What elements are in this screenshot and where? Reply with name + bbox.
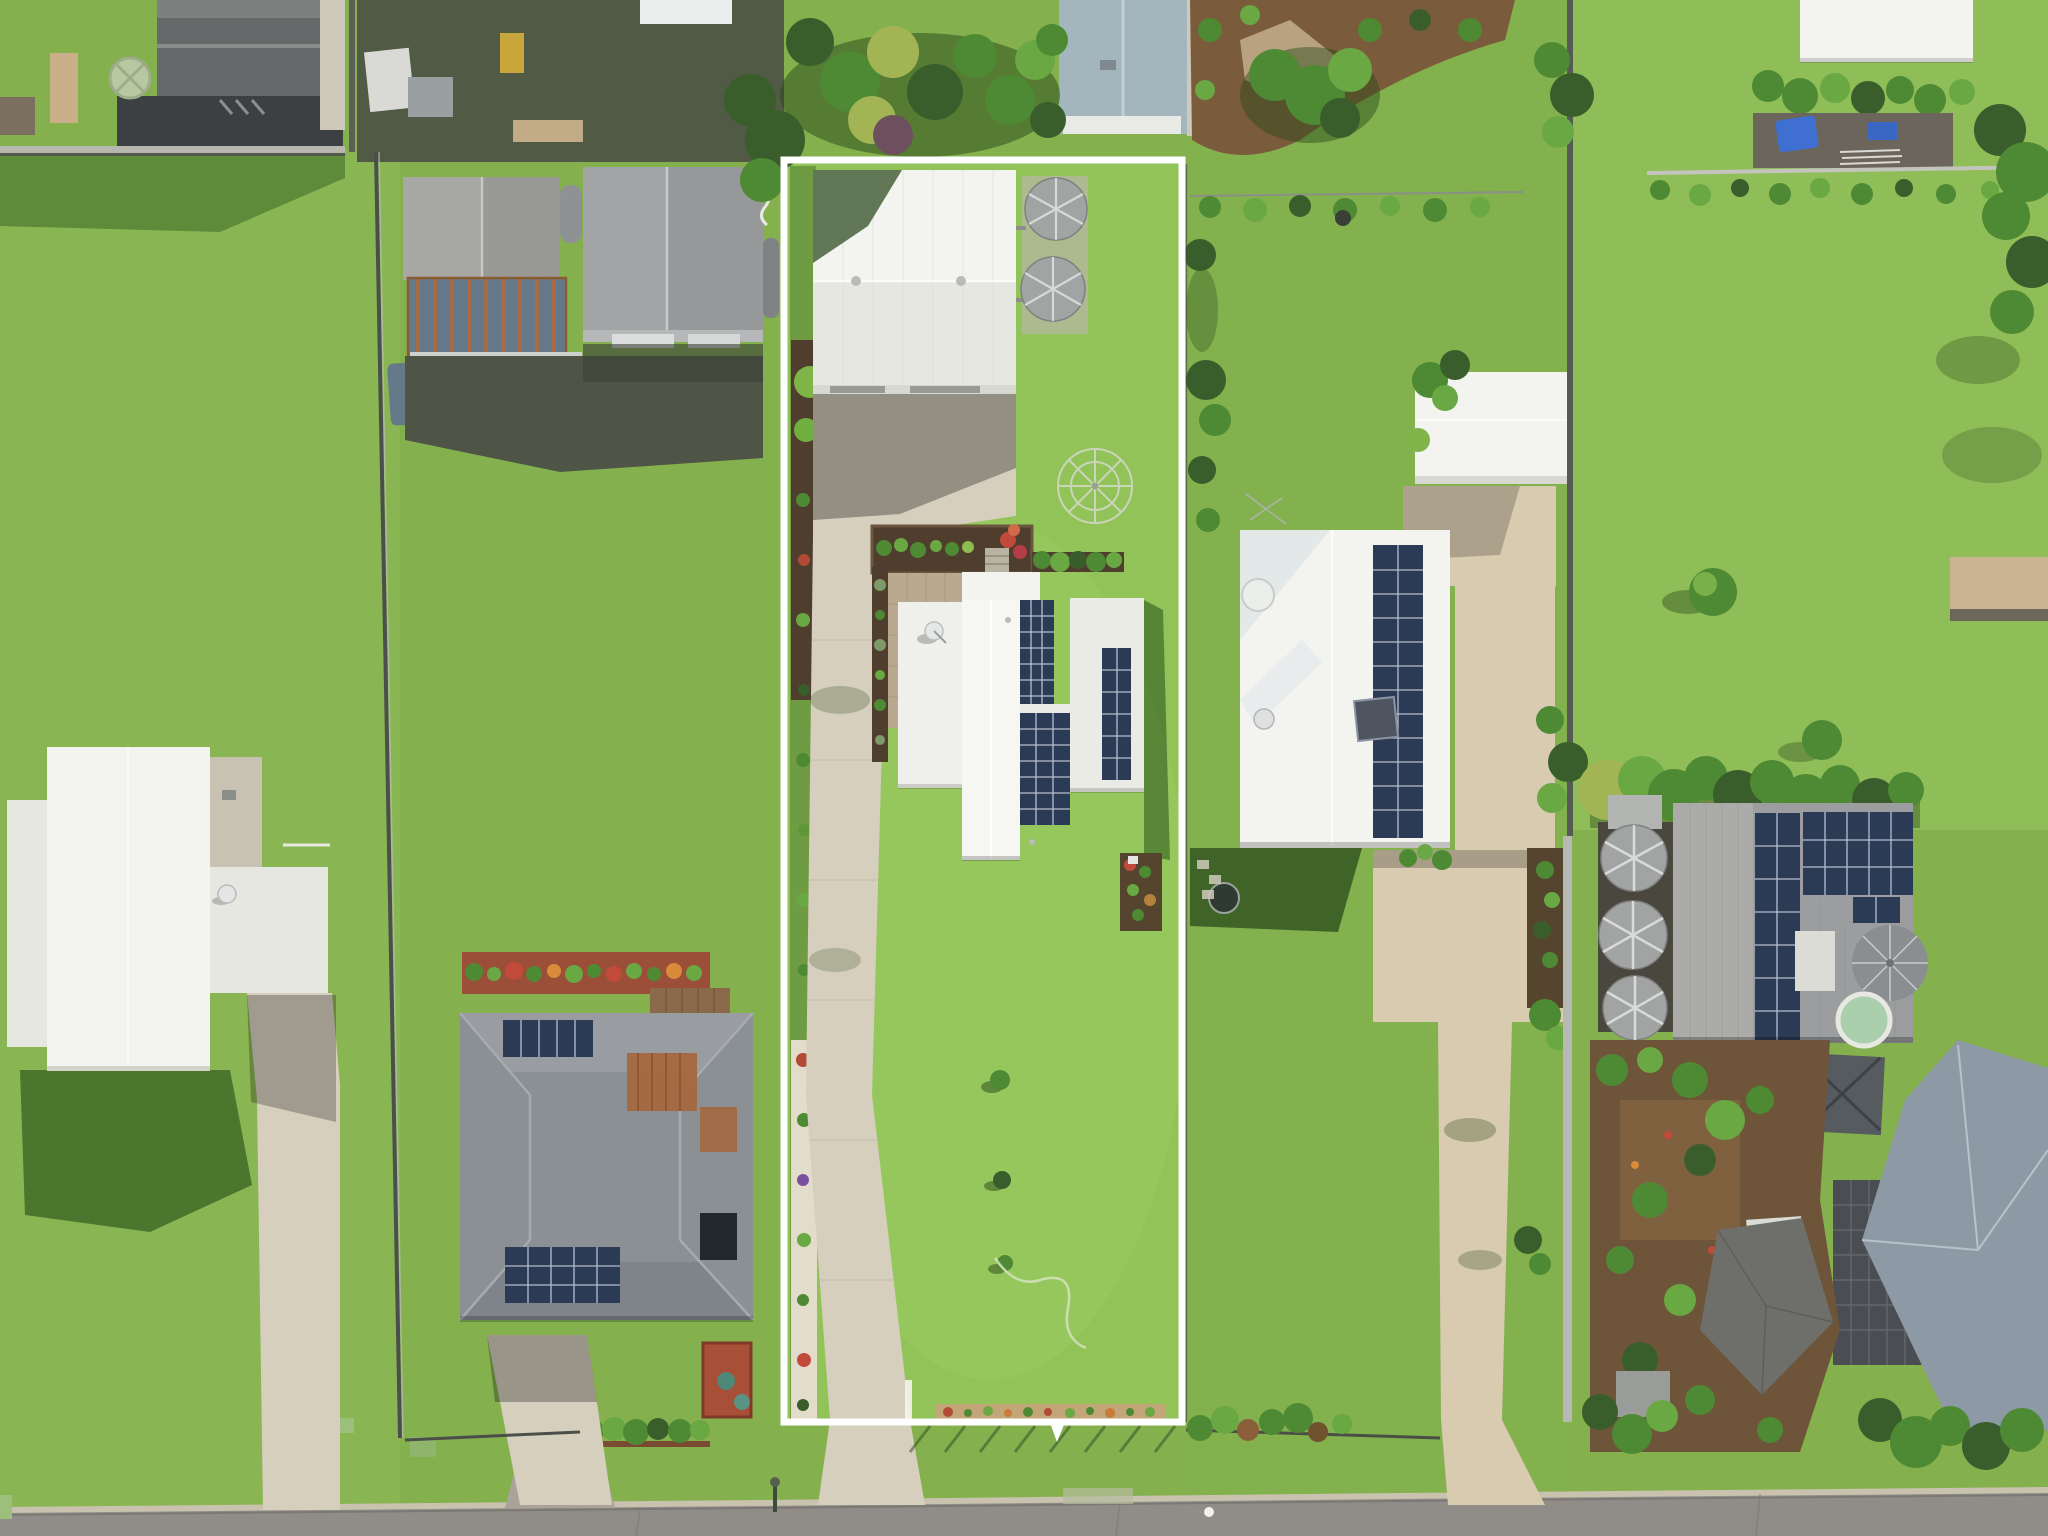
shed-shadow [583,344,763,382]
small-tree [1802,720,1842,760]
kerb-mark [1204,1507,1214,1517]
right-house [1240,494,1450,848]
back-fence-shadow [0,153,345,156]
small-grey-shed [1608,795,1662,829]
street-light-head [770,1477,780,1487]
yellow-excavator [500,33,524,73]
shrub [993,1171,1011,1189]
shadow-dapple [1444,1118,1496,1142]
utility-box [0,1495,12,1519]
roof-vent [851,276,861,286]
beige-flat-roof [1950,557,2048,615]
garden-item [1128,856,1138,864]
driveway-edge-highlight [905,1380,912,1422]
green-pool [1838,994,1890,1046]
roof-vent [956,276,966,286]
solar-array [503,1020,593,1057]
grey-umbrella [1852,925,1928,1001]
back-fence-rail [0,146,345,153]
shed-door [910,386,980,393]
carport-roof [117,96,343,146]
driveway-shadow [247,995,336,1122]
shrub-shadow-on-drive [809,948,861,972]
aerial-photo [0,0,2048,1536]
solar-array [505,1247,620,1303]
bluegray-house-wall [1063,116,1181,134]
shadow-dapple [1458,1250,1502,1270]
shrub [990,1070,1010,1090]
garage-flat-roof [962,572,1040,602]
clothesline-pole [1092,483,1099,490]
plant [1139,866,1151,878]
white-pavilion [1795,931,1835,991]
purple-leaf-bush [873,115,913,155]
solar-array-main-lower [1020,713,1070,825]
satellite-dish [218,885,236,903]
water-tanks [1016,176,1088,334]
solar-array-large [1803,812,1913,895]
roof-west-band [1673,803,1753,1043]
driveway-road-apron [818,1420,925,1505]
dirt-patch [50,53,78,123]
three-round-tanks [1599,825,1667,1040]
plant [1132,909,1144,921]
eave-shadow [460,1316,753,1322]
dirt-area [513,120,583,142]
eave-shadow [1800,58,1973,63]
slim-tank [560,185,582,243]
plant [1144,894,1156,906]
top-left-house-ridge [157,44,343,48]
blue-item [1867,122,1897,140]
large-shed-west-slope [583,167,667,339]
roof-vent [1005,617,1011,623]
skylight [1354,697,1398,741]
shed-wall [1415,476,1568,484]
satellite-dish [1254,709,1274,729]
timber-debris [0,97,35,135]
small-white-shed-roof [640,0,732,24]
round-white-tank [1242,579,1274,611]
roof-eave [47,1066,210,1071]
roof-vent [1100,60,1116,70]
courtyard-garden-strip [872,567,888,762]
beige-roof-awning [1950,609,2048,621]
compost-bin [1335,210,1351,226]
teal-garden-ball [717,1372,735,1390]
subject-shed [813,170,1016,394]
shrub-shadow-on-drive [810,686,870,714]
garden-steps [985,548,1009,573]
eave-shadow [962,856,1020,861]
slim-tank [763,238,779,318]
top-white-house [1800,0,1973,62]
top-left-house-roof-light [157,0,343,18]
rear-trees [1240,47,1380,143]
shed-door [830,386,885,393]
tree-shadow [1942,427,2042,483]
eave-shadow [898,784,962,789]
roof-gap [1020,704,1070,713]
eave-shadow [1070,788,1144,793]
aerial-photo-canvas [0,0,2048,1536]
driveway-south [1438,1022,1512,1420]
blue-tarp [1775,115,1819,152]
teal-garden-ball [734,1394,750,1410]
plant [1127,884,1139,896]
tree-shadow [1186,268,1218,352]
tree-shadow [1936,336,2020,384]
eave-shadow [1240,842,1450,848]
verge-pad [1063,1488,1133,1504]
lawn-bush-highlight [1693,572,1717,596]
left-house [460,1013,753,1322]
grey-tarp [408,77,453,117]
rust-pergola [700,1107,737,1152]
small-shed-east-slope [482,177,560,280]
solar-hot-water-panel [700,1213,737,1260]
boat-trailer [364,48,415,112]
side-path [320,0,345,130]
house-left-wing-roof [7,800,47,1047]
fence-light [1563,836,1572,1422]
front-driveway-shadow [487,1335,597,1402]
roof-vent [1029,839,1035,845]
courtyard-item [222,790,236,800]
courtyard [210,757,262,867]
side-fence [349,0,355,152]
